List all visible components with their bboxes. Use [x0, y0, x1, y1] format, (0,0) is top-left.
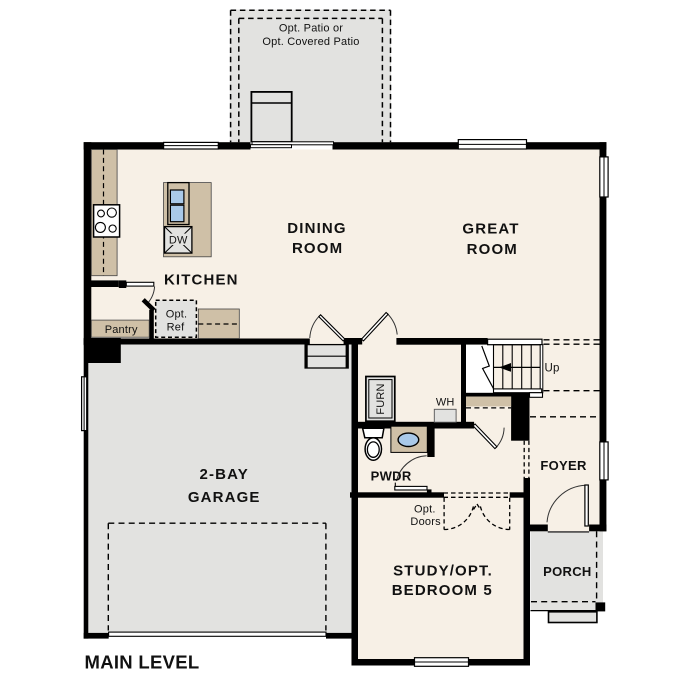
svg-text:Up: Up [545, 362, 560, 374]
svg-text:Doors: Doors [410, 516, 441, 528]
svg-text:BEDROOM 5: BEDROOM 5 [392, 582, 493, 599]
svg-text:Ref: Ref [167, 322, 185, 334]
svg-text:Opt. Patio or: Opt. Patio or [279, 23, 343, 35]
svg-text:Opt. Covered Patio: Opt. Covered Patio [262, 36, 359, 48]
svg-text:2-BAY: 2-BAY [200, 466, 249, 483]
svg-text:FURN: FURN [375, 383, 387, 414]
svg-text:ROOM: ROOM [467, 241, 518, 258]
svg-text:PORCH: PORCH [543, 564, 591, 579]
svg-text:WH: WH [436, 396, 455, 408]
svg-text:PWDR: PWDR [371, 469, 412, 484]
svg-text:Opt.: Opt. [166, 308, 188, 320]
svg-text:KITCHEN: KITCHEN [164, 272, 239, 289]
svg-text:MAIN LEVEL: MAIN LEVEL [85, 652, 200, 673]
svg-text:STUDY/OPT.: STUDY/OPT. [393, 562, 493, 579]
svg-text:FOYER: FOYER [540, 458, 587, 473]
svg-text:GARAGE: GARAGE [188, 489, 261, 506]
svg-text:DW: DW [169, 234, 188, 246]
svg-text:GREAT: GREAT [462, 221, 519, 238]
svg-text:ROOM: ROOM [292, 240, 343, 257]
svg-text:DINING: DINING [287, 220, 346, 237]
svg-text:Pantry: Pantry [105, 324, 138, 336]
svg-text:Opt.: Opt. [414, 504, 436, 516]
